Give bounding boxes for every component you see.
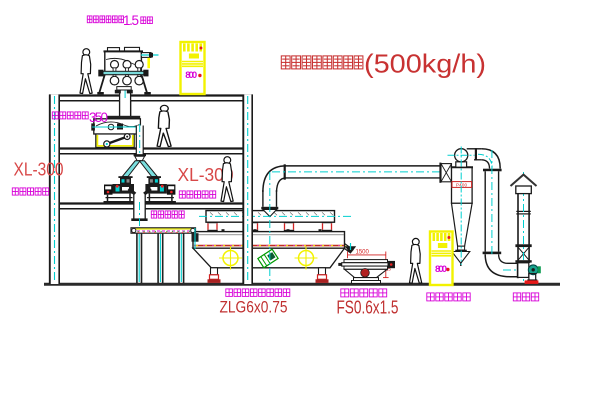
svg-text:1500: 1500 [356, 250, 370, 256]
svg-text:800: 800 [185, 70, 197, 81]
svg-text:P400: P400 [456, 182, 467, 187]
svg-text:ZLG6x0.75: ZLG6x0.75 [220, 298, 288, 317]
svg-text:1.5: 1.5 [123, 13, 139, 28]
svg-text:XL-300: XL-300 [14, 160, 64, 180]
svg-text:FS0.6x1.5: FS0.6x1.5 [337, 298, 399, 318]
svg-text:(500kg/h): (500kg/h) [364, 49, 486, 79]
svg-text:350: 350 [89, 110, 108, 125]
svg-text:800: 800 [435, 264, 447, 275]
